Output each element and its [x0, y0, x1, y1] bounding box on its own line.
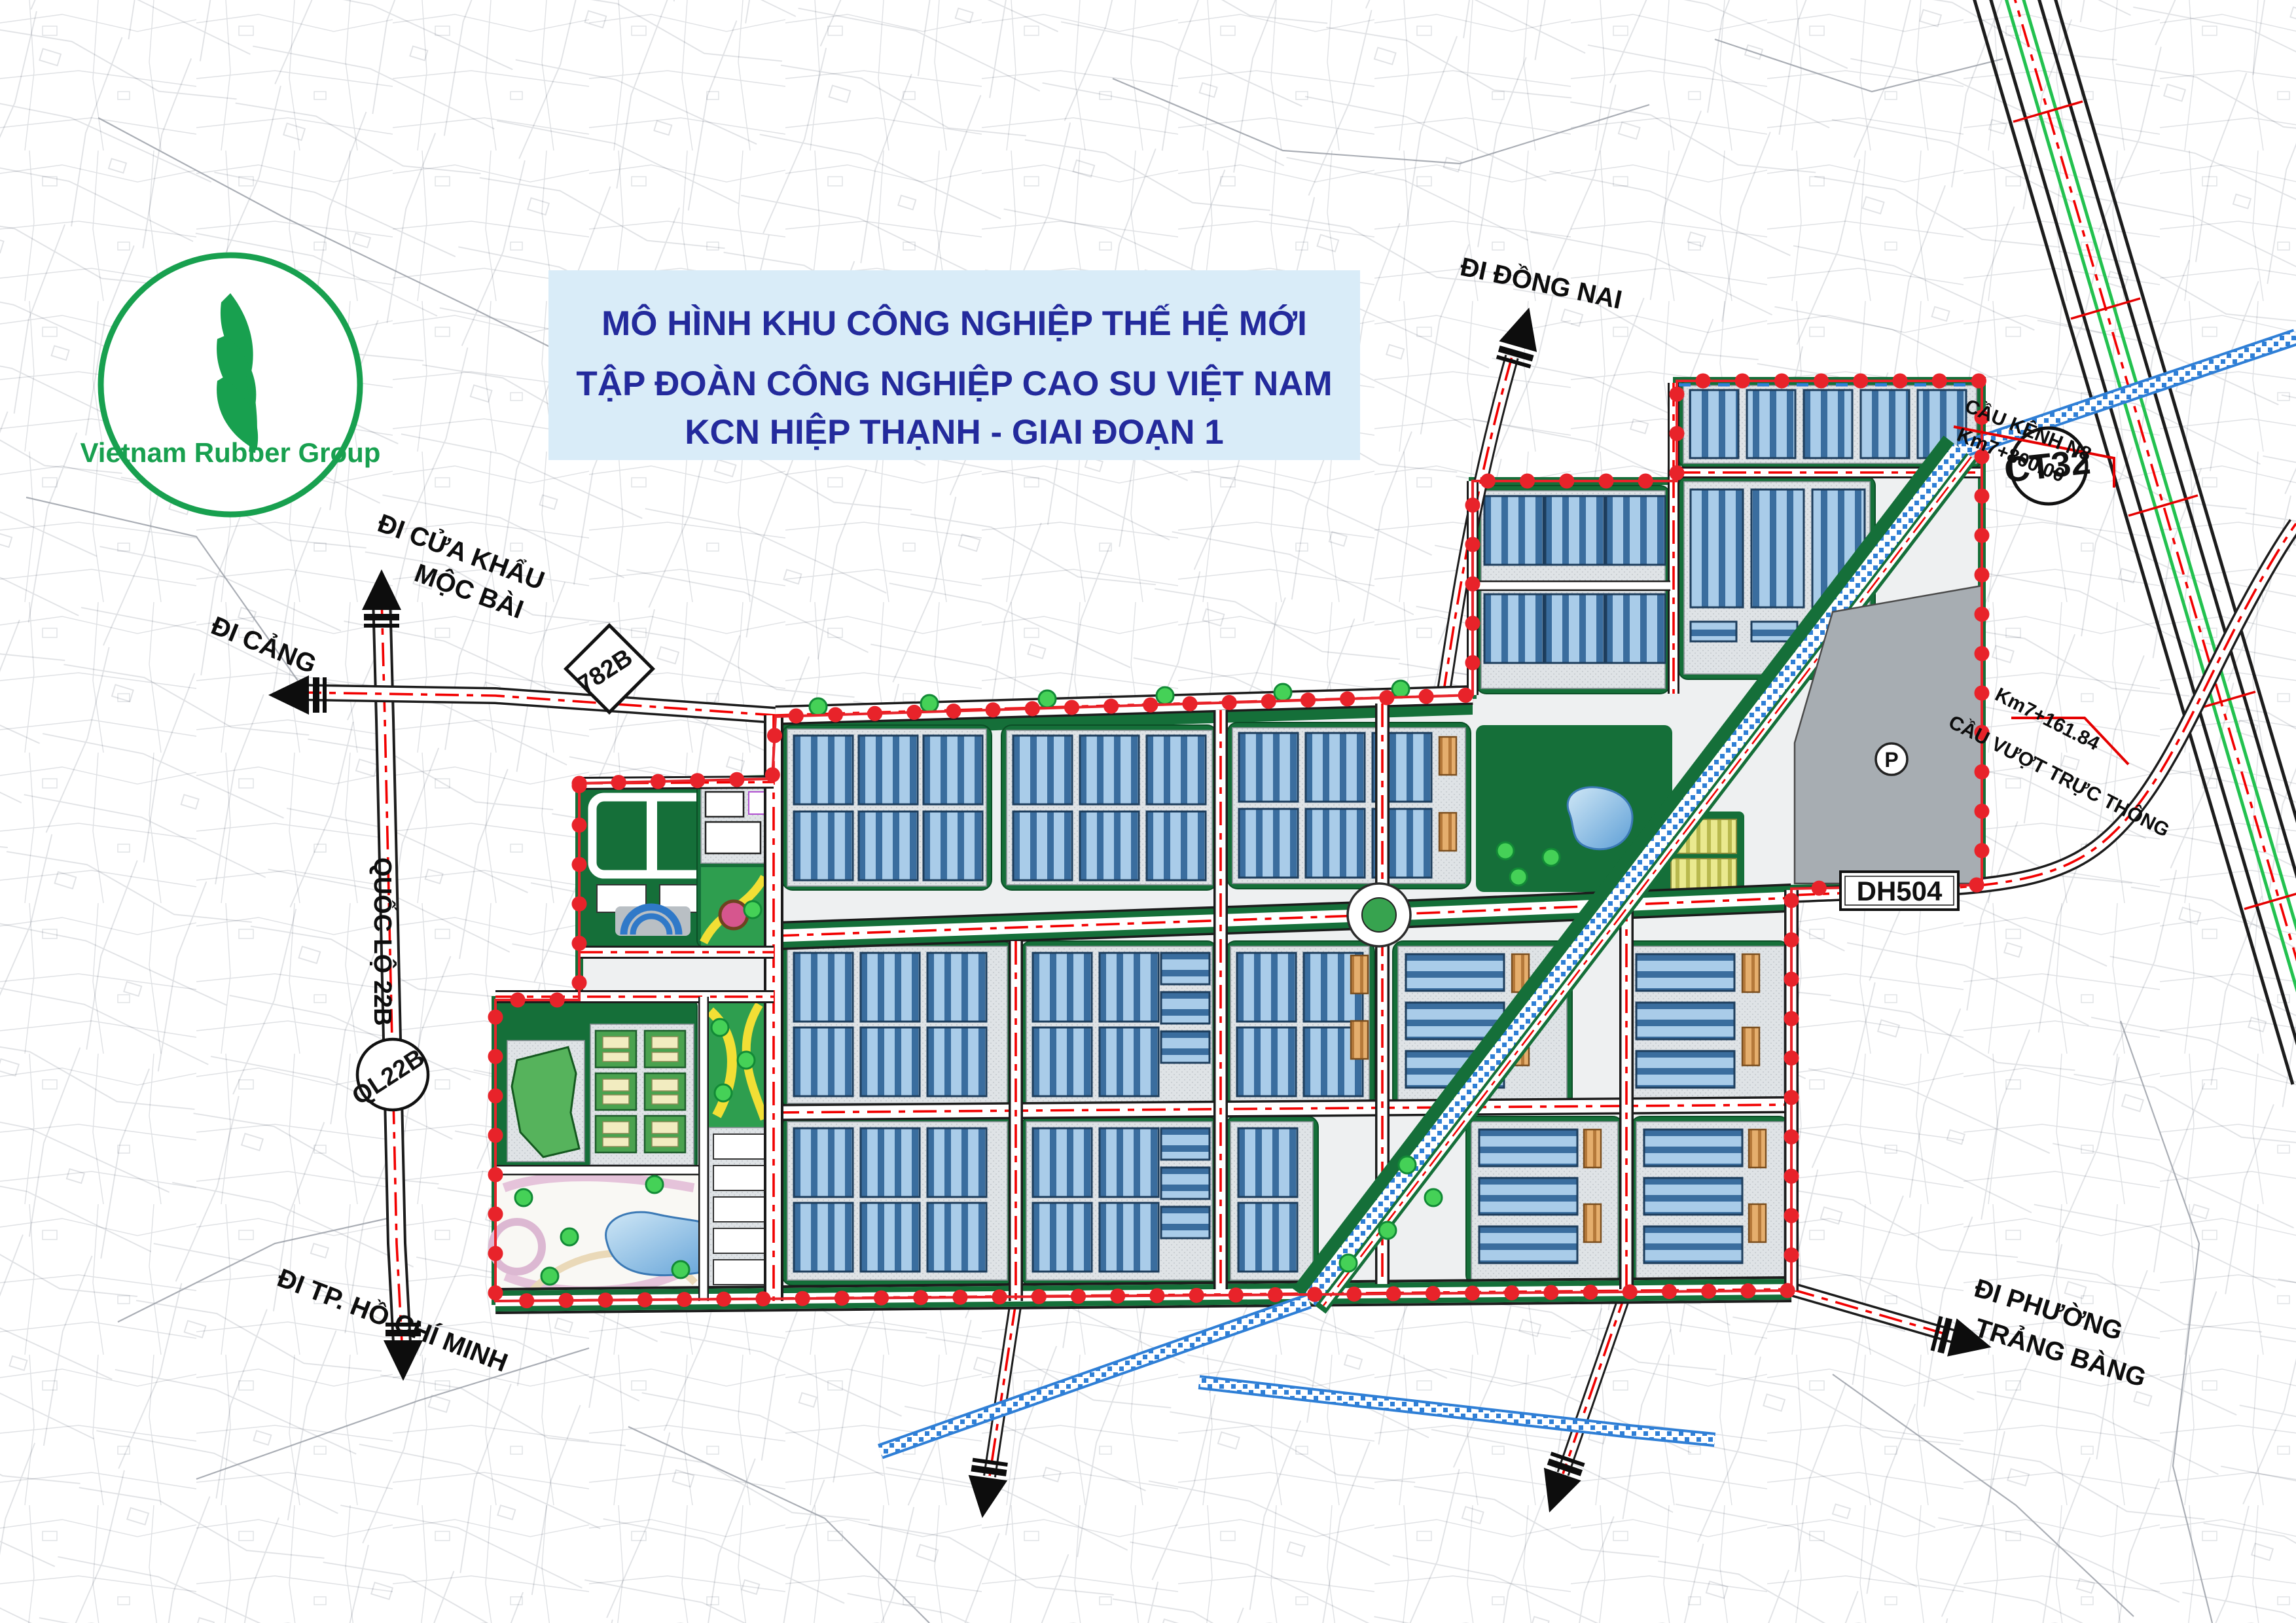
- block-s4: [1466, 1116, 1623, 1285]
- block-c3: [1225, 941, 1374, 1109]
- block-n1: [782, 725, 992, 890]
- block-s2: [1021, 1116, 1217, 1285]
- block-c2: [1021, 941, 1217, 1109]
- title-banner: MÔ HÌNH KHU CÔNG NGHIỆP THẾ HỆ MỚI TẬP Đ…: [548, 270, 1360, 460]
- block-c5: [1623, 941, 1789, 1109]
- block-c1: [782, 941, 1013, 1109]
- pond: [1568, 787, 1632, 849]
- service-zone: [697, 783, 770, 947]
- label-quoc-lo-22b: QUỐC LỘ 22B: [368, 857, 398, 1026]
- title-line-1: MÔ HÌNH KHU CÔNG NGHIỆP THẾ HỆ MỚI: [601, 303, 1307, 343]
- master-plan-map: P ĐI CỬA KHẨU MỘC BÀI ĐI CẢ: [0, 0, 2296, 1623]
- svg-text:DH504: DH504: [1857, 876, 1943, 906]
- title-line-3: KCN HIỆP THẠNH - GIAI ĐOẠN 1: [685, 412, 1224, 452]
- lake-park: [492, 1169, 727, 1301]
- shield-dh504: DH504: [1840, 872, 1958, 910]
- block-s5: [1631, 1116, 1789, 1285]
- block-s3: [1225, 1116, 1318, 1285]
- parking-label: P: [1884, 748, 1898, 772]
- block-s1: [782, 1116, 1013, 1285]
- logo-text: Vietnam Rubber Group: [81, 437, 381, 468]
- dormitory-strip: [709, 1128, 769, 1299]
- block-n2: [1001, 725, 1217, 890]
- flower-mandala: [720, 901, 747, 929]
- residential-zone: [495, 1000, 697, 1170]
- block-n3: [1227, 722, 1471, 889]
- roundabout: [1348, 883, 1410, 946]
- title-line-2: TẬP ĐOÀN CÔNG NGHIỆP CAO SU VIỆT NAM: [576, 363, 1332, 403]
